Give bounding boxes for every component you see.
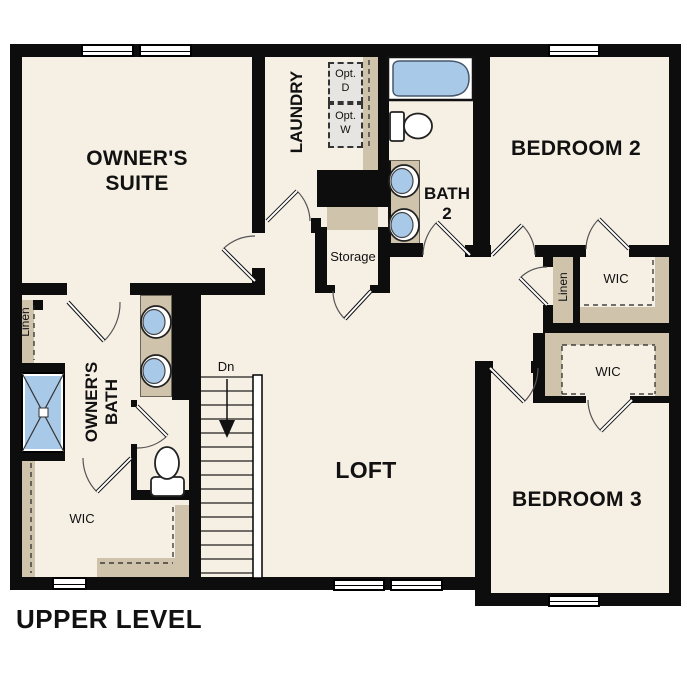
window [333, 579, 385, 591]
wall [22, 283, 67, 295]
owners-bath-label-line2: BATH [102, 347, 122, 457]
wall [475, 361, 493, 373]
owners-bath-vanity [140, 295, 172, 397]
wall [252, 57, 265, 233]
optional-washer-line1: Opt. [328, 110, 363, 124]
wall [545, 396, 586, 403]
shower-icon [21, 372, 65, 453]
bedroom3-wic-label: WIC [568, 364, 648, 379]
bath2-label-line2: 2 [397, 204, 497, 224]
laundry-label: LAUNDRY [287, 57, 305, 167]
wall [531, 361, 545, 373]
owners-wic-label: WIC [42, 511, 122, 526]
optional-dryer-line1: Opt. [328, 68, 363, 82]
wall [189, 400, 201, 578]
wall [131, 400, 137, 407]
wall [22, 453, 65, 461]
bedroom2-label: BEDROOM 2 [466, 137, 686, 162]
owners-suite-label-line2: SUITE [27, 172, 247, 197]
window [548, 44, 600, 57]
window [390, 579, 443, 591]
bedroom3-label: BEDROOM 3 [467, 488, 687, 513]
wall [22, 363, 65, 372]
laundry-cabinet [363, 57, 378, 170]
window [81, 44, 134, 57]
storage-shelf [327, 207, 378, 230]
linen-left-label: Linen [18, 300, 32, 344]
bedroom2-wic-shelf-bottom [580, 307, 669, 323]
window [139, 44, 192, 57]
bedroom2-wic-label: WIC [576, 271, 656, 286]
wall [543, 257, 553, 267]
optional-washer-label: Opt. W [328, 110, 363, 138]
wall [475, 361, 491, 606]
owners-suite-label-line1: OWNER'S [27, 147, 247, 172]
window [52, 577, 87, 590]
loft-label: LOFT [296, 457, 436, 484]
wall [630, 396, 669, 403]
wall [33, 300, 43, 310]
owners-wic-shelf-right [175, 505, 189, 558]
optional-dryer-line2: D [328, 82, 363, 96]
wall [172, 283, 201, 400]
linen-right-label: Linen [556, 261, 570, 313]
floor-plan: OWNER'S SUITE LAUNDRY BEDROOM 2 BATH 2 S… [0, 0, 687, 687]
wall [370, 285, 390, 293]
wall [252, 268, 265, 295]
owners-wic-shelf-left [22, 461, 35, 577]
wall [317, 170, 390, 207]
bath2-label: BATH 2 [397, 184, 497, 224]
optional-washer-line2: W [328, 124, 363, 138]
wall [131, 490, 201, 500]
storage-label: Storage [303, 249, 403, 264]
wall [311, 218, 321, 233]
wall [573, 257, 580, 323]
owners-suite-label: OWNER'S SUITE [27, 147, 247, 197]
owners-bath-label: OWNER'S BATH [82, 347, 120, 457]
stairs-dn-label: Dn [196, 359, 256, 374]
page-title: UPPER LEVEL [16, 604, 202, 635]
wall [378, 57, 389, 170]
wall [535, 245, 586, 257]
wall [543, 323, 681, 333]
bath2-label-line1: BATH [397, 184, 497, 204]
bedroom3-wic-door-gap [586, 396, 630, 403]
optional-dryer-label: Opt. D [328, 68, 363, 96]
owners-bath-label-line1: OWNER'S [82, 347, 102, 457]
window [548, 595, 600, 607]
wall [315, 285, 335, 293]
wall [629, 245, 681, 257]
owners-wic-shelf-bottom [97, 558, 189, 577]
